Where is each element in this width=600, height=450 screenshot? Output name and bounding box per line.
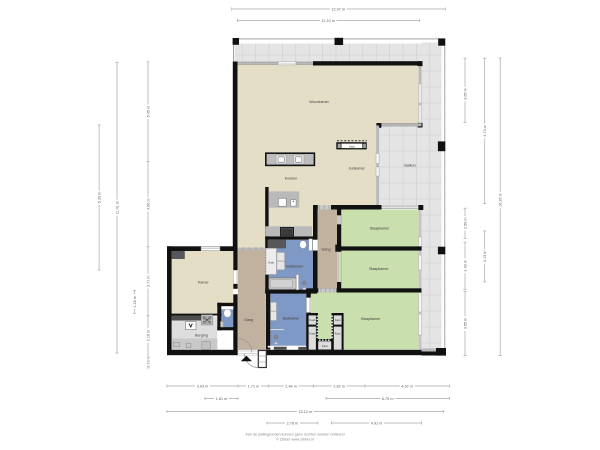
svg-text:© Zibber www.zibber.nl: © Zibber www.zibber.nl bbox=[276, 438, 314, 442]
svg-text:Badkamer: Badkamer bbox=[286, 265, 304, 269]
svg-text:Slaapkamer: Slaapkamer bbox=[369, 267, 389, 271]
svg-text:Gang: Gang bbox=[244, 318, 253, 322]
svg-text:2.44 m: 2.44 m bbox=[285, 384, 297, 388]
svg-text:Kast: Kast bbox=[335, 318, 341, 322]
svg-text:4.62 m: 4.62 m bbox=[401, 384, 413, 388]
svg-text:Slaapkamer: Slaapkamer bbox=[370, 227, 390, 231]
svg-text:4.91 m: 4.91 m bbox=[371, 421, 383, 425]
svg-text:11.41 m: 11.41 m bbox=[115, 201, 119, 214]
svg-text:11.10 m: 11.10 m bbox=[321, 19, 334, 23]
svg-text:Aan de plattegronden kunnen ge: Aan de plattegronden kunnen geen rechten… bbox=[245, 433, 344, 437]
svg-text:Kast: Kast bbox=[309, 318, 315, 322]
svg-text:2.59 m: 2.59 m bbox=[463, 217, 467, 229]
svg-text:Berging: Berging bbox=[195, 334, 208, 338]
svg-text:3.55 m: 3.55 m bbox=[463, 318, 467, 330]
svg-text:Kast: Kast bbox=[335, 332, 341, 336]
svg-text:Kast: Kast bbox=[268, 260, 274, 264]
svg-text:3.65 m: 3.65 m bbox=[463, 88, 467, 100]
svg-text:Kast: Kast bbox=[349, 144, 355, 148]
svg-text:5.45 m: 5.45 m bbox=[146, 106, 150, 118]
svg-text:Eetkamer: Eetkamer bbox=[349, 167, 366, 171]
svg-text:Balkon: Balkon bbox=[404, 164, 415, 168]
svg-text:2.16 m: 2.16 m bbox=[146, 330, 150, 342]
svg-text:5.30 m: 5.30 m bbox=[98, 192, 102, 204]
svg-text:12.97 m: 12.97 m bbox=[331, 7, 345, 11]
svg-text:4.66 m: 4.66 m bbox=[146, 198, 150, 210]
svg-text:4.73 m: 4.73 m bbox=[483, 125, 487, 137]
svg-text:3.77 m: 3.77 m bbox=[146, 275, 150, 287]
svg-text:3.93 m: 3.93 m bbox=[197, 384, 209, 388]
svg-text:2.78 m: 2.78 m bbox=[287, 421, 299, 425]
svg-text:Keuken: Keuken bbox=[285, 177, 298, 181]
svg-text:Badkamer: Badkamer bbox=[283, 317, 301, 321]
svg-text:6.75 m: 6.75 m bbox=[382, 397, 394, 401]
svg-text:1.71 m: 1.71 m bbox=[248, 384, 260, 388]
svg-text:15.12 m: 15.12 m bbox=[299, 410, 313, 414]
svg-text:Gang: Gang bbox=[321, 248, 330, 252]
svg-text:16.26 m: 16.26 m bbox=[499, 193, 503, 207]
svg-text:2.43 m: 2.43 m bbox=[463, 260, 467, 272]
svg-text:Kast: Kast bbox=[322, 344, 328, 348]
svg-text:0.73 m: 0.73 m bbox=[146, 356, 150, 368]
svg-text:Kast: Kast bbox=[309, 332, 315, 336]
svg-text:Slaapkamer: Slaapkamer bbox=[361, 317, 381, 321]
svg-text:3.13 m: 3.13 m bbox=[483, 251, 487, 263]
svg-text:1.26 m: 1.26 m bbox=[133, 296, 137, 308]
svg-text:2.82 m: 2.82 m bbox=[333, 384, 345, 388]
svg-text:1.81 m: 1.81 m bbox=[216, 397, 228, 401]
svg-text:Woonkamer: Woonkamer bbox=[309, 100, 330, 104]
svg-text:Kamer: Kamer bbox=[198, 281, 210, 285]
